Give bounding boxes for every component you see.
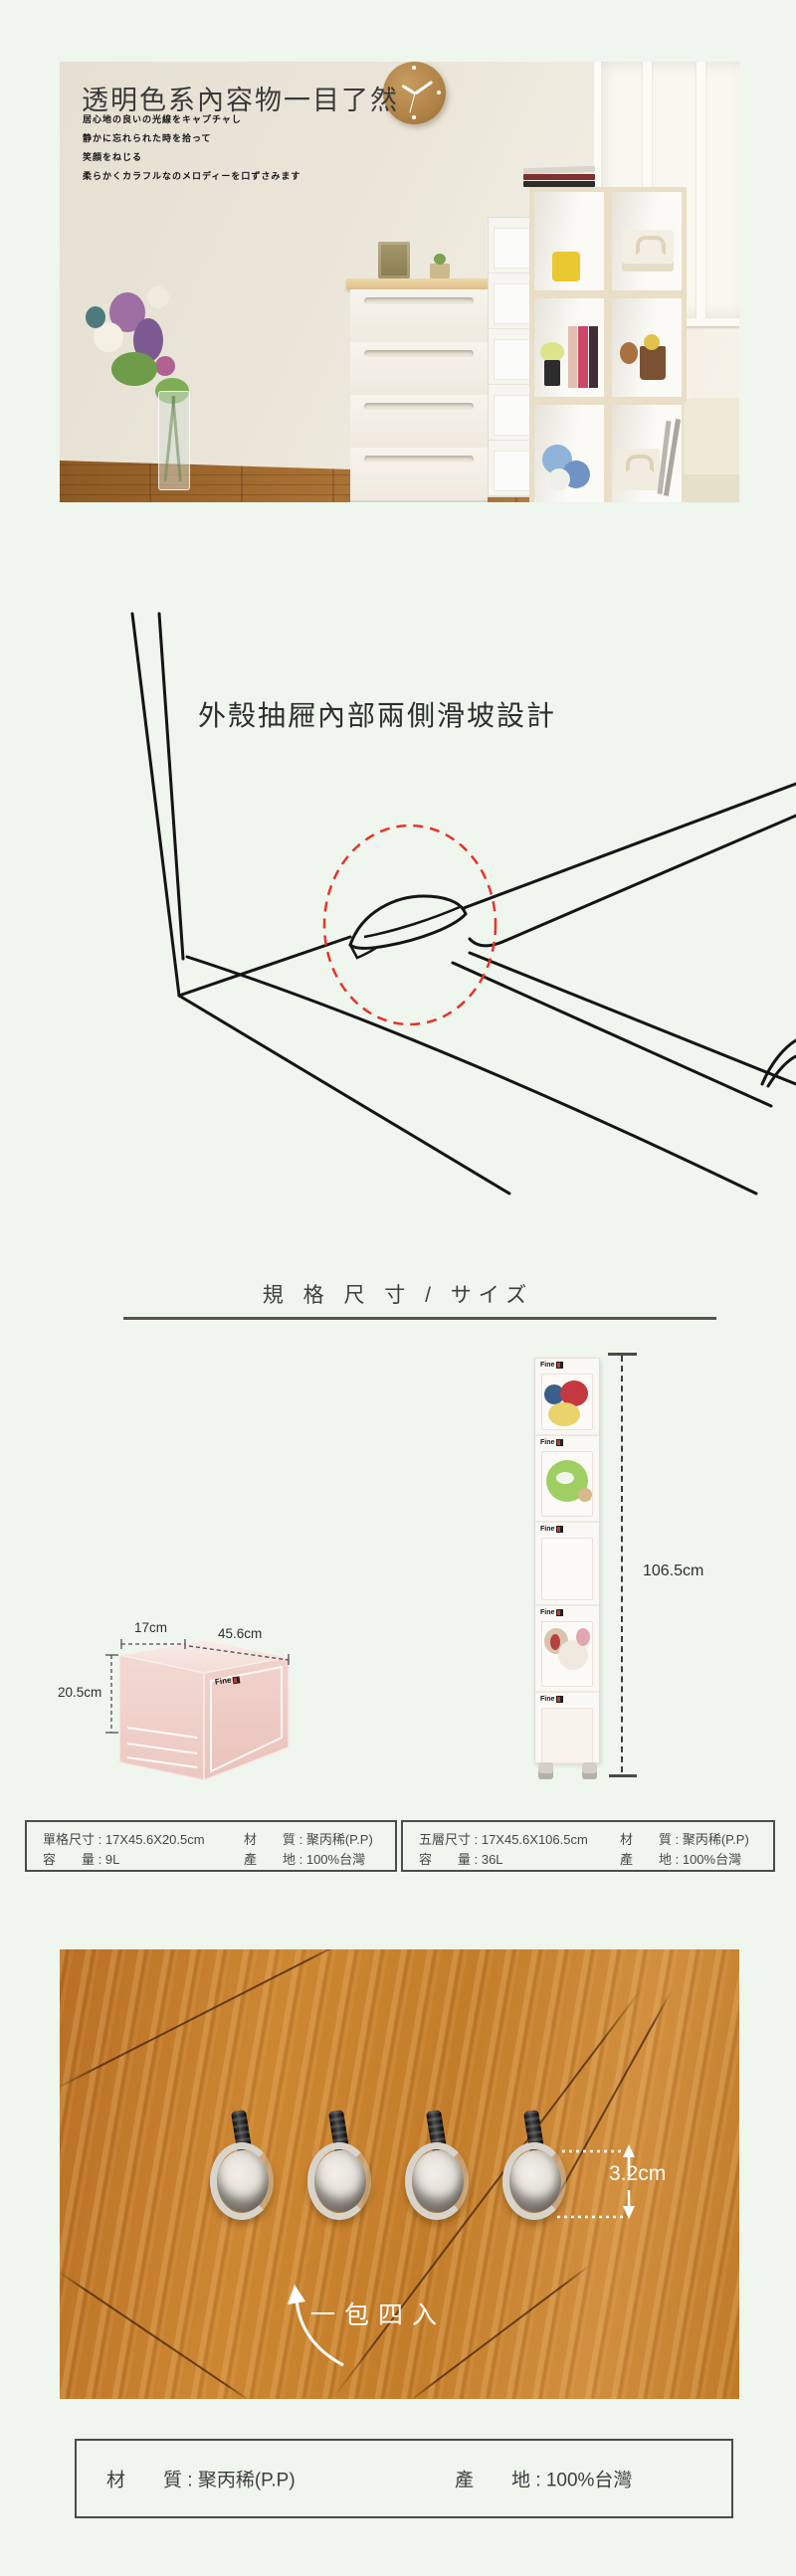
spec-table-tower: 五層尺寸 : 17X45.6X106.5cm 材 質 : 聚丙稀(P.P) 容 … bbox=[401, 1820, 775, 1872]
flower-leaves bbox=[111, 352, 157, 386]
yellow-mug bbox=[552, 252, 580, 281]
book bbox=[523, 166, 595, 175]
tower-tier-2: Fine bbox=[535, 1436, 599, 1523]
tier-window bbox=[541, 1708, 593, 1764]
clock-mark bbox=[437, 91, 441, 94]
tower-caster bbox=[538, 1762, 553, 1779]
clock-minute-hand bbox=[414, 80, 433, 93]
spec-cell: 材 質 : 聚丙稀(P.P) bbox=[620, 1829, 749, 1848]
tier-window bbox=[541, 1451, 593, 1517]
heading-divider bbox=[123, 1317, 716, 1320]
glass-vase bbox=[158, 391, 190, 490]
dim-width: 17cm bbox=[134, 1620, 167, 1635]
hero-subtitle-line: 居心地の良いの光線をキャプチャし bbox=[83, 112, 242, 125]
flower-pot bbox=[544, 360, 560, 386]
green-ball-highlight bbox=[556, 1472, 574, 1484]
brown-mug bbox=[640, 346, 666, 380]
cabinet-wood-top bbox=[346, 278, 492, 289]
shelf-cell bbox=[612, 192, 682, 290]
plush-toy bbox=[550, 1634, 560, 1650]
drawer-cabinet bbox=[350, 278, 488, 500]
shelf-cell bbox=[534, 192, 604, 290]
shelf-cell bbox=[612, 298, 682, 397]
cube-shelf bbox=[529, 187, 687, 502]
dim-height: 20.5cm bbox=[58, 1685, 101, 1700]
dim-tower-height: 106.5cm bbox=[643, 1563, 703, 1580]
footer-origin: 產 地 : 100%台灣 bbox=[455, 2466, 632, 2492]
flower-white bbox=[147, 286, 169, 308]
toy bbox=[578, 1488, 592, 1502]
footer-material: 材 質 : 聚丙稀(P.P) bbox=[106, 2466, 296, 2492]
measure-tick-top bbox=[608, 1353, 637, 1356]
sofa bbox=[684, 398, 739, 502]
shelf-cell bbox=[612, 405, 682, 502]
tower-tier bbox=[489, 329, 535, 385]
cabinet-drawer bbox=[350, 395, 488, 450]
tower-tier bbox=[489, 441, 535, 496]
spec-cell: 五層尺寸 : 17X45.6X106.5cm bbox=[419, 1829, 588, 1848]
hero-subtitle-line: 笑顔をねじる bbox=[83, 150, 142, 163]
shelf-cell bbox=[534, 298, 604, 397]
toy bbox=[548, 1402, 580, 1426]
spec-cell: 單格尺寸 : 17X45.6X20.5cm bbox=[43, 1829, 205, 1848]
cabinet-drawer bbox=[350, 448, 488, 502]
spec-cell: 產 地 : 100%台灣 bbox=[620, 1849, 741, 1868]
caster-height-label: 3.2cm bbox=[609, 2162, 666, 2186]
logo-mark bbox=[233, 1676, 241, 1684]
decor-mini-plant bbox=[430, 264, 450, 278]
dim-depth: 45.6cm bbox=[218, 1626, 262, 1641]
clock-mark bbox=[412, 66, 416, 70]
pack-quantity-label: 一包四入 bbox=[310, 2296, 446, 2331]
feature-caption: 外殼抽屜內部兩側滑坡設計 bbox=[198, 694, 556, 734]
hydrangea bbox=[548, 468, 570, 490]
plush-toy bbox=[576, 1628, 590, 1646]
book bbox=[578, 326, 588, 388]
spec-heading: 規 格 尺 寸 / サイズ bbox=[0, 1279, 796, 1309]
toy bbox=[644, 334, 660, 350]
hero-subtitle-line: 柔らかくカラフルなのメロディーを口ずさみます bbox=[83, 169, 300, 182]
hero-photo: 透明色系內容物一目了然 居心地の良いの光線をキャプチャし 静かに忘れられた時を拾… bbox=[60, 62, 739, 502]
clock-second-hand bbox=[409, 92, 415, 112]
small-flowers bbox=[540, 342, 564, 362]
measure-tick-bottom bbox=[609, 1774, 637, 1777]
decor-book-box bbox=[378, 242, 410, 278]
slide-ramp-shape bbox=[350, 896, 466, 949]
tower-tier-5: Fine bbox=[535, 1693, 599, 1768]
spec-cell: 容 量 : 36L bbox=[419, 1849, 503, 1868]
tower-tier bbox=[489, 274, 535, 329]
spec-cell: 材 質 : 聚丙稀(P.P) bbox=[244, 1829, 373, 1848]
tower-tier bbox=[489, 385, 535, 441]
spec-table-single: 單格尺寸 : 17X45.6X20.5cm 材 質 : 聚丙稀(P.P) 容 量… bbox=[25, 1820, 397, 1872]
book bbox=[589, 326, 598, 388]
shelf-cell bbox=[534, 405, 604, 502]
footer-spec-box: 材 質 : 聚丙稀(P.P) 產 地 : 100%台灣 bbox=[75, 2439, 733, 2518]
rope-handle bbox=[626, 455, 654, 472]
cabinet-drawer bbox=[350, 342, 488, 397]
product-detail-page: 透明色系內容物一目了然 居心地の良いの光線をキャプチャし 静かに忘れられた時を拾… bbox=[0, 0, 796, 2576]
hero-subtitle-line: 静かに忘れられた時を拾って bbox=[83, 131, 212, 144]
casters-photo: 3.2cm 一包四入 bbox=[60, 1949, 739, 2399]
flower-teal bbox=[86, 306, 105, 328]
tower-caster bbox=[582, 1762, 597, 1779]
rope-handle bbox=[636, 236, 666, 256]
flower-magenta bbox=[155, 356, 175, 376]
tower-tier-3: Fine bbox=[535, 1523, 599, 1606]
spec-cell: 產 地 : 100%台灣 bbox=[244, 1849, 365, 1868]
tower-tier-4: Fine bbox=[535, 1606, 599, 1693]
tower-tier bbox=[489, 218, 535, 274]
cabinet-drawer bbox=[350, 289, 488, 344]
single-box-figure bbox=[0, 1591, 796, 1790]
arrow-down-icon bbox=[623, 2206, 635, 2219]
arrow-up-icon bbox=[623, 2144, 635, 2157]
book bbox=[523, 174, 595, 180]
tower-measure-line bbox=[621, 1356, 623, 1772]
book bbox=[568, 326, 577, 388]
window-mullion bbox=[696, 62, 705, 318]
tier-window bbox=[541, 1538, 593, 1600]
clock-hour-hand bbox=[401, 84, 415, 93]
clock-mark bbox=[412, 115, 416, 119]
spec-cell: 容 量 : 9L bbox=[43, 1849, 119, 1868]
tier-window bbox=[541, 1374, 593, 1430]
curved-arrow-head bbox=[288, 2285, 305, 2304]
monkey-toy bbox=[620, 342, 638, 364]
tower-figure: Fine Fine Fine Fine bbox=[534, 1358, 600, 1763]
tower-tier-1: Fine bbox=[535, 1359, 599, 1436]
tier-window bbox=[541, 1621, 593, 1687]
books-on-shelf-top bbox=[523, 167, 599, 187]
